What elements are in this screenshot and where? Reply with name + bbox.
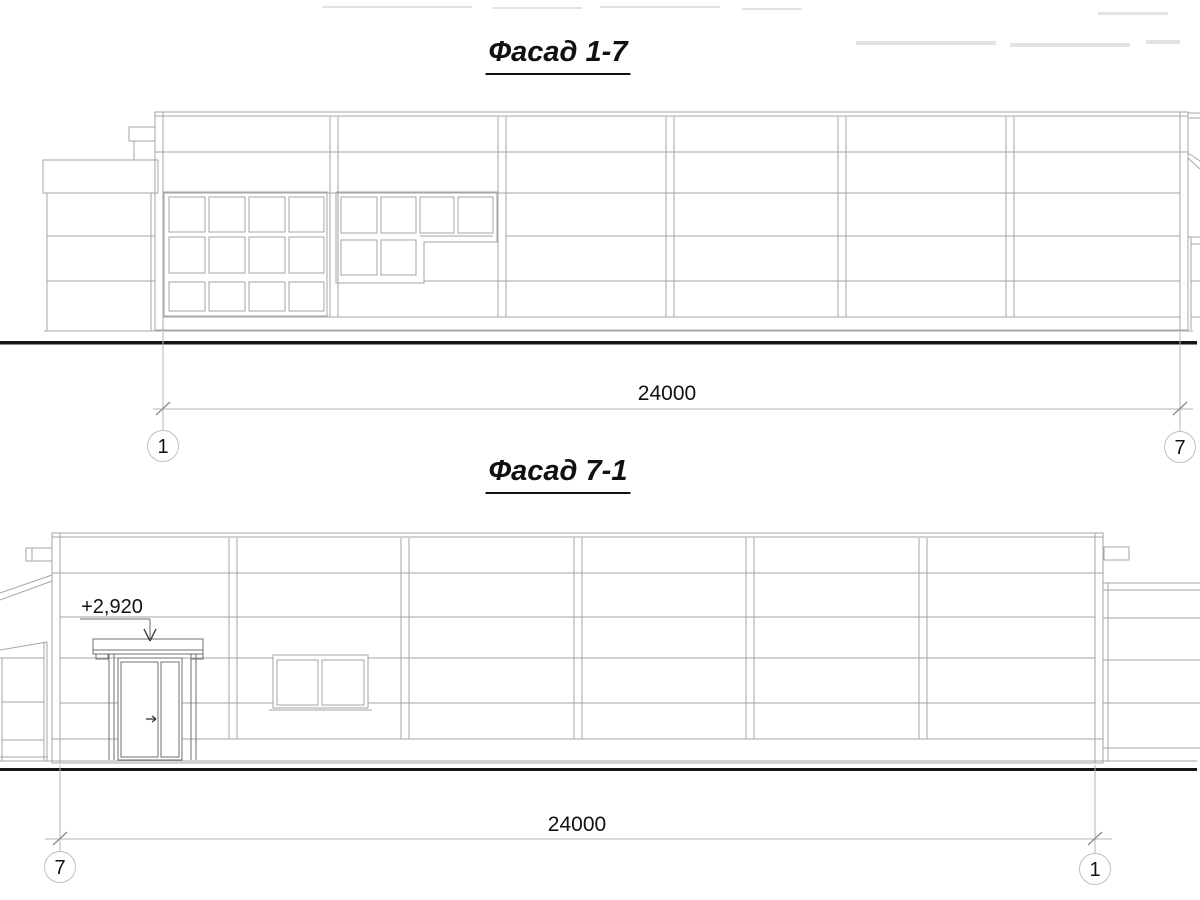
drawing-line [209, 282, 245, 311]
drawing-line [458, 197, 493, 233]
facade-top-ground-line [0, 341, 1197, 345]
drawing-line [43, 160, 158, 193]
roof-vent-box [129, 127, 155, 141]
drawing-line [209, 197, 245, 232]
drawing-line [856, 41, 996, 45]
drawing-line [169, 237, 205, 273]
facade-top-window-grid-bay2 [336, 192, 497, 283]
drawing-line [1098, 12, 1168, 15]
drawing-sheet: Фасад 1-7 Фасад 7-1 [0, 0, 1200, 900]
facade-top-right-cutoff [1188, 113, 1200, 330]
drawing-line [742, 8, 802, 10]
facade-1-7-drawing: 24000 1 7 [0, 112, 1200, 463]
drawing-line [322, 660, 364, 705]
annex-vent-box [1104, 547, 1129, 560]
facade-drawings-canvas: 24000 1 7 [0, 0, 1200, 900]
axis-label-1-top: 1 [157, 436, 168, 458]
drawing-line [249, 282, 285, 311]
drawing-line [289, 197, 324, 232]
facade-7-1-drawing: +2,920 [0, 533, 1200, 885]
facade-bottom-dimension: 24000 7 1 [45, 765, 1113, 885]
drawing-line [169, 197, 205, 232]
facade-bottom-pilasters [229, 538, 927, 739]
drawing-line [249, 237, 285, 273]
drawing-line [1146, 40, 1180, 44]
drawing-line [169, 282, 205, 311]
facade-top-window-grid-bay1 [164, 192, 327, 316]
drawing-line [341, 240, 377, 275]
elevation-mark-text: +2,920 [81, 596, 143, 618]
drawing-line [381, 197, 416, 233]
sheet-top-artifacts [322, 6, 1180, 47]
facade-top-dimension: 24000 1 7 [148, 332, 1196, 463]
facade-top-dimension-text: 24000 [638, 382, 696, 405]
door-leaf-wide [121, 662, 158, 757]
drawing-line [600, 6, 720, 8]
facade-bottom-left-cutoff [0, 548, 52, 761]
axis-label-7-bottom: 7 [54, 857, 65, 879]
drawing-line [492, 7, 582, 9]
facade-bottom-right-annex [1103, 547, 1200, 761]
drawing-line [209, 237, 245, 273]
drawing-line [420, 197, 454, 233]
drawing-line [289, 237, 324, 273]
drawing-line [1010, 43, 1130, 47]
elevation-mark: +2,920 [80, 596, 156, 641]
facade-bottom-window [269, 655, 372, 710]
drawing-line [322, 6, 472, 8]
door-canopy [93, 639, 203, 654]
entrance-door-assembly [93, 639, 203, 760]
drawing-line [249, 197, 285, 232]
drawing-line [52, 533, 1103, 763]
facade-top-annex-left [43, 127, 158, 331]
axis-label-7-top: 7 [1174, 437, 1185, 459]
facade-bottom-dimension-text: 24000 [548, 813, 606, 836]
drawing-line [289, 282, 324, 311]
drawing-line [277, 660, 318, 705]
drawing-line [341, 197, 377, 233]
drawing-line [381, 240, 416, 275]
drawing-line [0, 642, 47, 650]
door-leaf-narrow [161, 662, 179, 757]
facade-bottom-ground-line [0, 768, 1197, 771]
roof-vent-box-bottom [26, 548, 52, 561]
axis-label-1-bottom: 1 [1089, 859, 1100, 881]
